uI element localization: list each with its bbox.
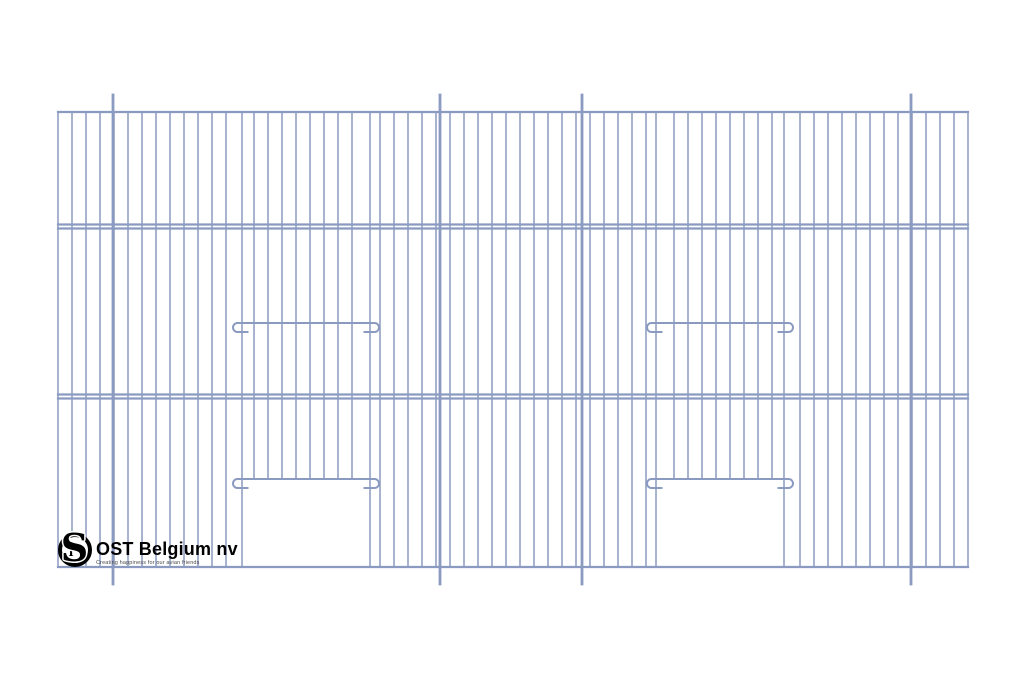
brand-logo: T S OST Belgium nv Creating happiness fo… xyxy=(57,532,238,568)
product-image: T S OST Belgium nv Creating happiness fo… xyxy=(0,0,1024,683)
brand-tagline: Creating happiness for our avian friends xyxy=(96,561,238,567)
perch-hook-bar xyxy=(647,323,793,332)
brand-text-block: OST Belgium nv Creating happiness for ou… xyxy=(96,532,238,566)
ost-monogram-icon: T S xyxy=(57,532,93,568)
monogram-letter-s: S xyxy=(61,529,88,567)
door-hook-bar xyxy=(647,479,793,488)
door-hook-bar xyxy=(233,479,379,488)
cage-front-panel-drawing xyxy=(0,0,1024,683)
brand-name: OST Belgium nv xyxy=(96,540,238,558)
perch-hook-bar xyxy=(233,323,379,332)
